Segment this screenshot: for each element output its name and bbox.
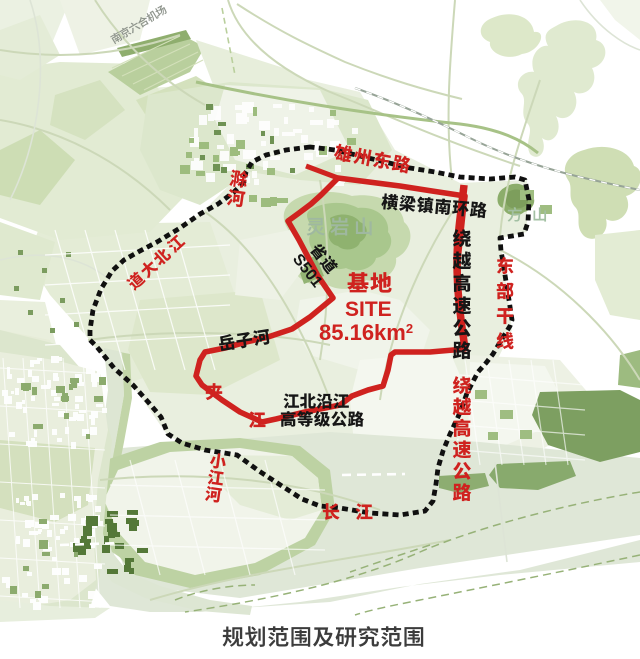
svg-text:85.16km2: 85.16km2 <box>319 320 413 345</box>
svg-text:SITE: SITE <box>345 298 392 321</box>
